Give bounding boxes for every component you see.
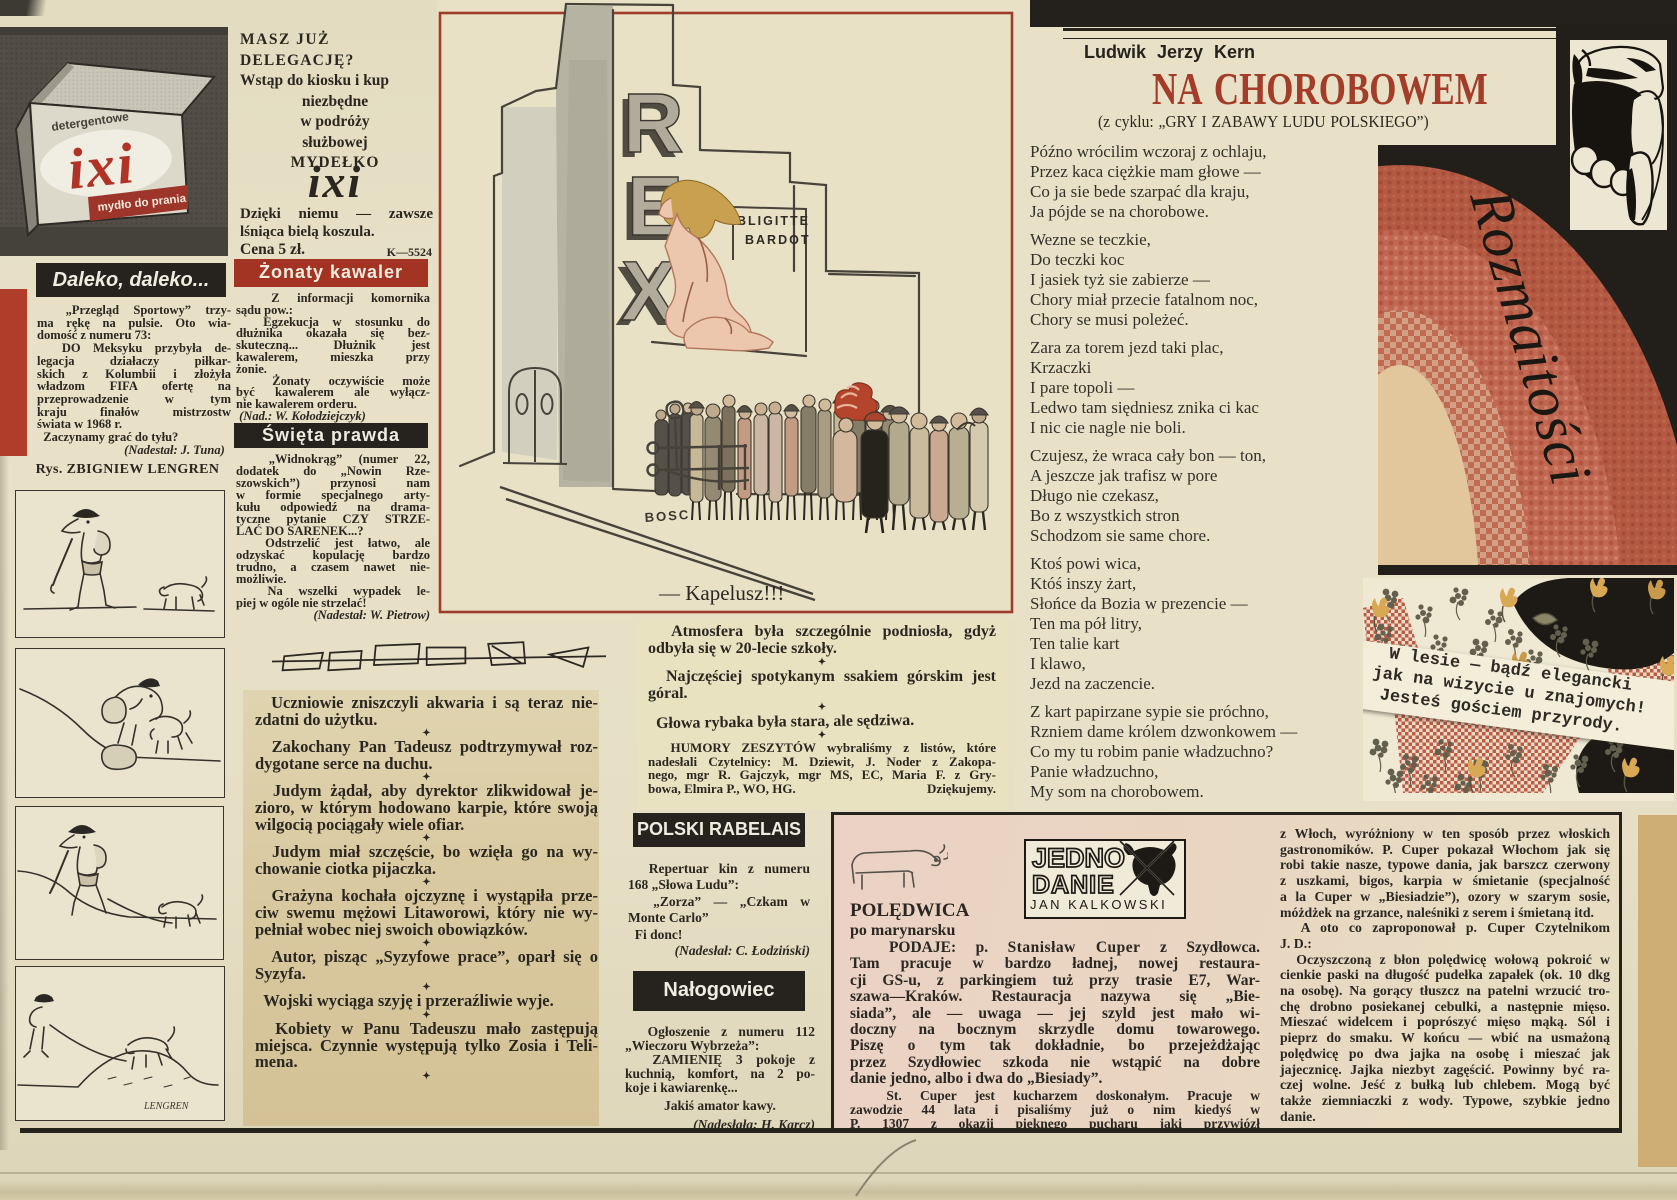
svg-text:LENGREN: LENGREN <box>143 1101 190 1112</box>
svg-text:JEDNO: JEDNO <box>1032 843 1125 873</box>
svg-text:DANIE: DANIE <box>1032 871 1115 899</box>
svg-text:BLIGITTE: BLIGITTE <box>737 214 810 228</box>
svg-text:R: R <box>623 76 684 170</box>
svg-text:ixi: ixi <box>65 130 139 202</box>
svg-text:BOSC: BOSC <box>644 507 690 525</box>
svg-text:— Kapelusz!!!: — Kapelusz!!! <box>658 581 784 605</box>
svg-text:BARDOT: BARDOT <box>745 233 810 247</box>
